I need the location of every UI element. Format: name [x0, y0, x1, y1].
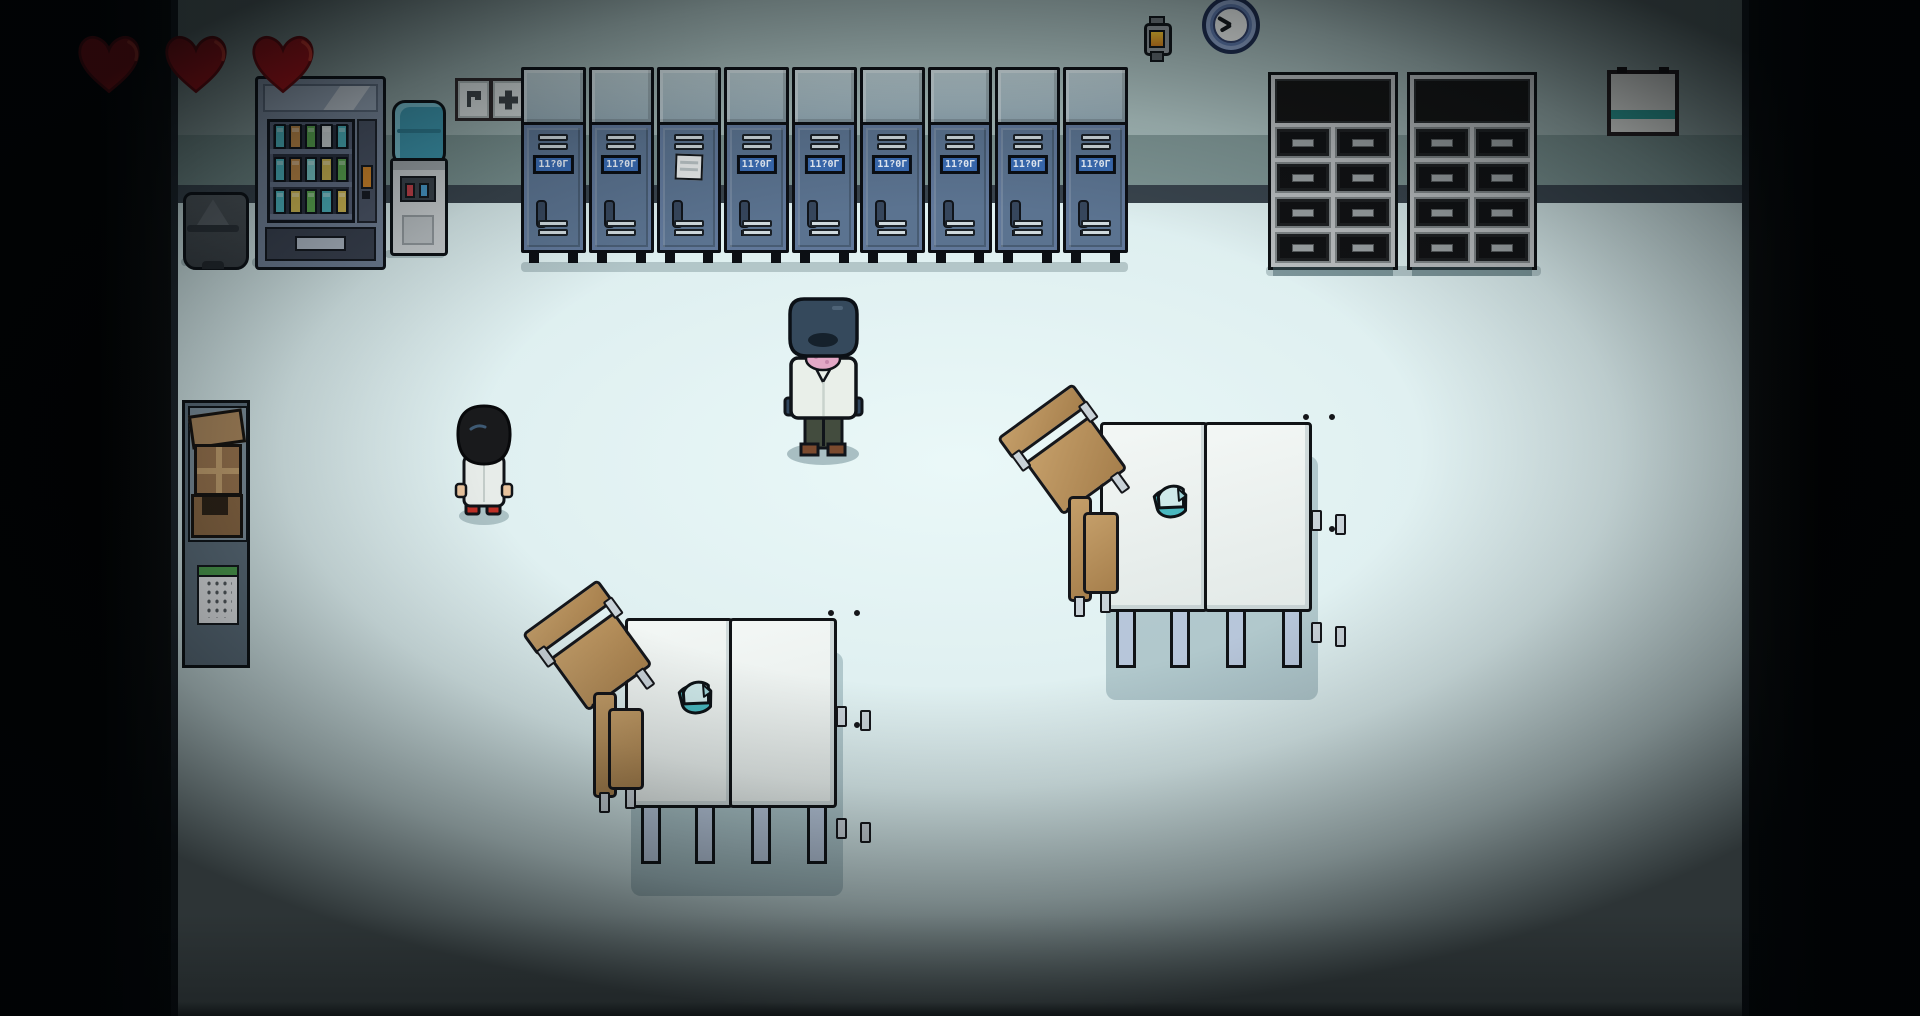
vending-shelf: [270, 156, 352, 187]
locker-floor-shadow: [521, 262, 1128, 272]
drink-can: [336, 189, 348, 214]
locker-vent: [606, 134, 636, 141]
locker-vent: [538, 134, 568, 141]
locker-foot: [703, 250, 713, 263]
cabinet-drawer[interactable]: [1335, 197, 1391, 228]
locker-foot: [636, 250, 646, 263]
locker-vent: [810, 220, 840, 227]
whiteboard[interactable]: [1607, 70, 1679, 136]
drink-can: [336, 124, 348, 149]
game-canvas: 11?0Γ11?0Γ11?0Γ11?0Γ11?0Γ11?0Γ11?0Γ11?0Γ: [0, 0, 1920, 1016]
plus-icon: [499, 91, 518, 110]
cooler-recess: [402, 215, 434, 245]
teal-cap-item[interactable]: [672, 668, 718, 726]
cabinet-drawer[interactable]: [1275, 197, 1331, 228]
locker-door[interactable]: 11?0Γ: [798, 128, 851, 247]
locker-top-panel: [931, 70, 990, 125]
cabinet-drawer[interactable]: [1275, 162, 1331, 193]
cabinet-drawer[interactable]: [1275, 127, 1331, 158]
cabinet-drawer[interactable]: [1474, 197, 1530, 228]
trash-foot: [202, 261, 224, 269]
room-right-edge: [1742, 0, 1749, 1016]
drink-can: [289, 124, 301, 149]
locker[interactable]: 11?0Γ: [1063, 67, 1128, 253]
water-cooler[interactable]: [387, 100, 445, 256]
locker-foot: [800, 250, 810, 263]
drink-can: [320, 189, 332, 214]
locker-vent: [742, 143, 772, 150]
clock-hand: [1220, 23, 1232, 32]
locker[interactable]: 11?0Γ: [589, 67, 654, 253]
locker-vent: [1081, 134, 1111, 141]
floor: [178, 203, 1742, 1016]
locker-foot: [936, 250, 946, 263]
vending-shelf: [270, 188, 352, 219]
locker-top-panel: [592, 70, 651, 125]
vending-shelf: [270, 123, 352, 154]
locker[interactable]: 11?0Γ: [521, 67, 586, 253]
table: [1204, 422, 1312, 612]
locker-vent: [742, 134, 772, 141]
lantern-icon: [1141, 16, 1169, 62]
locker-nameplate: 11?0Γ: [804, 155, 844, 174]
clock-face: [1213, 7, 1249, 43]
drink-can: [336, 157, 348, 182]
locker-top-panel: [660, 70, 719, 125]
vending-side-panel: [357, 119, 377, 223]
locker-vent: [674, 143, 704, 150]
locker-nameplate: 11?0Γ: [1008, 155, 1048, 174]
drawer-cabinet[interactable]: [1407, 72, 1537, 270]
dispenser-flap: [295, 236, 346, 251]
cooler-tap-panel: [400, 176, 436, 202]
cardboard-box: [194, 444, 242, 496]
locker-vent: [945, 143, 975, 150]
drawer-handle: [1352, 209, 1374, 217]
locker-vent: [810, 134, 840, 141]
locker-vent: [538, 229, 568, 236]
scientist-npc[interactable]: [780, 296, 868, 468]
npc-head: [790, 299, 857, 356]
drawer-handle: [1431, 139, 1453, 147]
cabinet-drawer-grid: [1275, 127, 1391, 263]
drink-can: [289, 157, 301, 182]
lantern-flame: [1149, 30, 1165, 48]
locker-door[interactable]: 11?0Γ: [1001, 128, 1054, 247]
locker-nameplate: 11?0Γ: [872, 155, 912, 174]
chair: [593, 692, 639, 812]
drawer-handle: [1491, 244, 1513, 252]
drawer-handle: [1431, 174, 1453, 182]
cabinet-drawer[interactable]: [1335, 232, 1391, 263]
locker-vent: [742, 220, 772, 227]
locker-foot: [568, 250, 578, 263]
locker-door[interactable]: 11?0Γ: [866, 128, 919, 247]
locker[interactable]: 11?0Γ: [792, 67, 857, 253]
locker-foot: [665, 250, 675, 263]
teal-cap-item[interactable]: [1147, 472, 1193, 530]
cabinet-drawer[interactable]: [1335, 127, 1391, 158]
locker-vent: [606, 220, 636, 227]
keypad[interactable]: [197, 571, 239, 625]
board-clip: [1659, 67, 1669, 73]
locker-row: 11?0Γ11?0Γ11?0Γ11?0Γ11?0Γ11?0Γ11?0Γ11?0Γ: [521, 67, 1128, 253]
drink-can: [274, 157, 286, 182]
table-group: [545, 598, 885, 898]
locker-top-panel: [795, 70, 854, 125]
drink-can: [274, 124, 286, 149]
lantern-base: [1150, 51, 1164, 62]
locker-vent: [945, 220, 975, 227]
table-group: [1020, 402, 1360, 702]
card-slot: [362, 191, 370, 199]
locker[interactable]: 11?0Γ: [860, 67, 925, 253]
drawer-handle: [1292, 244, 1314, 252]
drawer-handle: [1431, 244, 1453, 252]
drawer-handle: [1292, 209, 1314, 217]
box-compartment: [188, 406, 248, 542]
locker-nameplate: 11?0Γ: [601, 155, 641, 174]
cabinet-drawer[interactable]: [1414, 162, 1470, 193]
coin-slot[interactable]: [361, 165, 373, 189]
cabinet-drawer[interactable]: [1335, 162, 1391, 193]
locker-foot: [732, 250, 742, 263]
drawer-handle: [1292, 139, 1314, 147]
cabinet-drawer[interactable]: [1414, 232, 1470, 263]
flag-icon: [467, 91, 481, 107]
chair: [1068, 496, 1114, 616]
board-stripe: [1611, 110, 1675, 119]
cardboard-box-open: [191, 494, 243, 538]
keypad-buttons: [204, 578, 232, 618]
cabinet-top-panel: [1414, 79, 1530, 123]
locker-foot: [771, 250, 781, 263]
locker-nameplate: 11?0Γ: [1076, 155, 1116, 174]
drawer-handle: [1292, 174, 1314, 182]
locker-door[interactable]: 11?0Γ: [934, 128, 987, 247]
locker-foot: [907, 250, 917, 263]
cabinet-top-panel: [1275, 79, 1391, 123]
locker-vent: [674, 134, 704, 141]
locker-vent: [810, 143, 840, 150]
locker-vent: [877, 134, 907, 141]
drink-can: [320, 157, 332, 182]
locker-nameplate: 11?0Γ: [737, 155, 777, 174]
locker-vent: [877, 220, 907, 227]
drink-can: [305, 124, 317, 149]
player-hair: [458, 406, 510, 464]
locker-vent: [945, 229, 975, 236]
player-hand: [456, 484, 466, 497]
locker-vent: [674, 220, 704, 227]
npc-shoe: [828, 444, 845, 455]
trash-can[interactable]: [183, 192, 249, 270]
locker-vent: [674, 229, 704, 236]
locker-vent: [1081, 143, 1111, 150]
cabinet-drawer[interactable]: [1474, 162, 1530, 193]
locker-vent: [877, 143, 907, 150]
cabinet-drawer[interactable]: [1474, 232, 1530, 263]
offscreen-band-right: [1742, 0, 1920, 1016]
storage-unit[interactable]: [182, 400, 250, 668]
drink-can: [305, 157, 317, 182]
board-clip: [1617, 67, 1627, 73]
locker-foot: [974, 250, 984, 263]
locker-door[interactable]: [663, 128, 716, 247]
locker[interactable]: 11?0Γ: [995, 67, 1060, 253]
locker-foot: [1042, 250, 1052, 263]
trash-lid: [189, 197, 237, 227]
locker-top-panel: [863, 70, 922, 125]
locker-vent: [1013, 229, 1043, 236]
locker-vent: [1013, 143, 1043, 150]
npc-mouth: [808, 333, 838, 347]
locker-vent: [945, 134, 975, 141]
drink-can: [274, 189, 286, 214]
locker-nameplate: 11?0Γ: [940, 155, 980, 174]
player-hand: [502, 484, 512, 497]
locker-vent: [810, 229, 840, 236]
drawer-handle: [1491, 209, 1513, 217]
locker-foot: [1003, 250, 1013, 263]
drawer-handle: [1352, 244, 1374, 252]
vending-shelves: [267, 119, 355, 223]
wall-clock: [1202, 0, 1260, 54]
drink-can: [305, 189, 317, 214]
vending-machine[interactable]: [255, 76, 386, 270]
cooler-collar: [393, 161, 445, 170]
cabinet-drawer[interactable]: [1275, 232, 1331, 263]
locker-top-panel: [524, 70, 583, 125]
locker[interactable]: 11?0Γ: [724, 67, 789, 253]
drawer-cabinet[interactable]: [1268, 72, 1398, 270]
cold-tap[interactable]: [419, 183, 429, 198]
cabinet-drawer[interactable]: [1414, 127, 1470, 158]
heart-icon: [160, 31, 232, 97]
floor-bottom-edge: [178, 1002, 1742, 1016]
locker-top-panel: [1066, 70, 1125, 125]
locker[interactable]: 11?0Γ: [928, 67, 993, 253]
cabinet-drawer[interactable]: [1414, 197, 1470, 228]
drawer-handle: [1431, 209, 1453, 217]
drink-can: [320, 124, 332, 149]
locker-vent: [1013, 220, 1043, 227]
locker-vent: [1081, 229, 1111, 236]
locker-foot: [1071, 250, 1081, 263]
locker-top-panel: [998, 70, 1057, 125]
drawer-handle: [1352, 174, 1374, 182]
cabinet-drawer-grid: [1414, 127, 1530, 263]
player-character: [452, 402, 516, 528]
locker-foot: [1110, 250, 1120, 263]
drawer-handle: [1491, 139, 1513, 147]
vending-dispenser[interactable]: [265, 227, 376, 261]
drink-can: [289, 189, 301, 214]
locker-vent: [606, 229, 636, 236]
locker-door[interactable]: 11?0Γ: [595, 128, 648, 247]
locker-foot: [839, 250, 849, 263]
cooler-body: [390, 158, 448, 256]
locker-vent: [538, 143, 568, 150]
table: [729, 618, 837, 808]
locker-top-panel: [727, 70, 786, 125]
locker-door[interactable]: 11?0Γ: [730, 128, 783, 247]
offscreen-band-left: [0, 0, 178, 1016]
cabinet-drawer[interactable]: [1474, 127, 1530, 158]
locker-foot: [597, 250, 607, 263]
locker-foot: [868, 250, 878, 263]
locker-foot: [529, 250, 539, 263]
npc-shoe: [801, 444, 818, 455]
locker-door[interactable]: 11?0Γ: [527, 128, 580, 247]
drawer-handle: [1352, 139, 1374, 147]
locker[interactable]: [657, 67, 722, 253]
drawer-handle: [1491, 174, 1513, 182]
heart-icon: [247, 31, 319, 97]
keypad-screen: [197, 565, 239, 577]
locker-door[interactable]: 11?0Γ: [1069, 128, 1122, 247]
hot-tap[interactable]: [405, 183, 415, 198]
locker-paper-note[interactable]: [675, 154, 704, 181]
locker-vent: [1013, 134, 1043, 141]
locker-nameplate: 11?0Γ: [533, 155, 573, 174]
water-bottle: [392, 100, 446, 166]
wall-sign-flag: [455, 78, 492, 121]
locker-vent: [877, 229, 907, 236]
room-left-edge: [171, 0, 178, 1016]
locker-vent: [742, 229, 772, 236]
locker-vent: [606, 143, 636, 150]
trash-rim: [187, 225, 239, 232]
locker-vent: [1081, 220, 1111, 227]
heart-icon: [73, 31, 145, 97]
hearts: [73, 31, 319, 97]
locker-vent: [538, 220, 568, 227]
